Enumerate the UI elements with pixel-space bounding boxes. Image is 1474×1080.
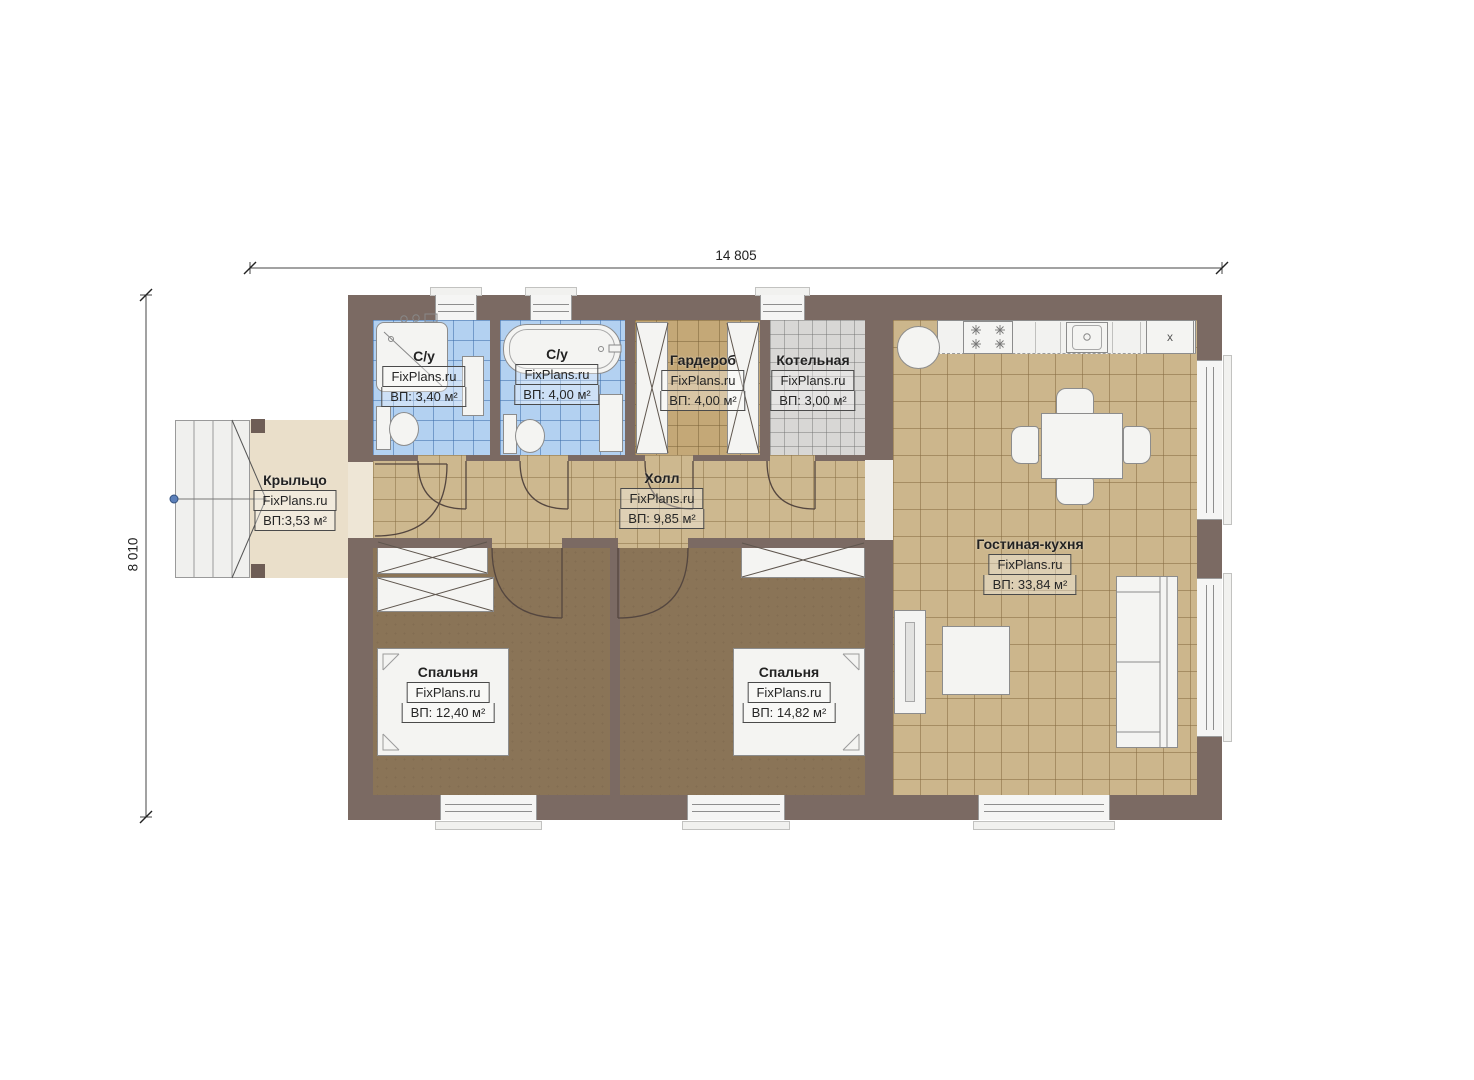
partition — [562, 538, 618, 548]
toilet-bowl — [515, 419, 545, 453]
counter-divider — [1060, 322, 1061, 353]
room-label-boiler: Котельная FixPlans.ru ВП: 3,00 м² — [770, 352, 855, 411]
chair — [1123, 426, 1151, 464]
window — [435, 295, 477, 320]
room-name: Холл — [644, 470, 679, 486]
room-area: ВП: 33,84 м² — [984, 575, 1077, 595]
room-label-bath1: С/у FixPlans.ru ВП: 3,40 м² — [381, 348, 466, 407]
cabinet — [599, 394, 623, 452]
chair — [1011, 426, 1039, 464]
stairs — [175, 420, 250, 578]
sofa — [1116, 576, 1178, 748]
counter-divider — [1140, 322, 1141, 353]
counter-divider — [1112, 322, 1113, 353]
sink-basin — [1072, 325, 1102, 350]
room-area: ВП: 4,00 м² — [514, 385, 599, 405]
watermark: FixPlans.ru — [515, 364, 598, 385]
room-area: ВП: 14,82 м² — [743, 703, 836, 723]
chair — [1056, 388, 1094, 416]
dimension-width: 14 805 — [686, 248, 786, 263]
room-label-bedroom2: Спальня FixPlans.ru ВП: 14,82 м² — [743, 664, 836, 723]
partition — [625, 320, 635, 461]
tv — [905, 622, 915, 702]
room-label-bedroom1: Спальня FixPlans.ru ВП: 12,40 м² — [402, 664, 495, 723]
room-area: ВП: 3,40 м² — [381, 387, 466, 407]
watermark: FixPlans.ru — [771, 370, 854, 391]
closet — [377, 577, 494, 612]
partition — [865, 540, 893, 820]
room-name: Спальня — [759, 664, 819, 680]
partition — [865, 295, 893, 460]
dimension-height: 8 010 — [126, 523, 141, 587]
coffee-table — [942, 626, 1010, 695]
room-label-wardrobe: Гардероб FixPlans.ru ВП: 4,00 м² — [660, 352, 745, 411]
watermark: FixPlans.ru — [747, 682, 830, 703]
window — [440, 795, 537, 820]
room-name: Спальня — [418, 664, 478, 680]
window — [978, 795, 1110, 820]
room-name: С/у — [546, 346, 568, 362]
room-name: Котельная — [776, 352, 849, 368]
watermark: FixPlans.ru — [382, 366, 465, 387]
window-sill — [1223, 573, 1232, 742]
window-sill — [435, 821, 542, 830]
fridge-label: x — [1167, 330, 1173, 344]
stove — [963, 321, 1013, 354]
room-label-bath2: С/у FixPlans.ru ВП: 4,00 м² — [514, 346, 599, 405]
partition — [760, 320, 770, 461]
room-area: ВП: 12,40 м² — [402, 703, 495, 723]
watermark: FixPlans.ru — [988, 554, 1071, 575]
chair — [1056, 477, 1094, 505]
room-label-living: Гостиная-кухня FixPlans.ru ВП: 33,84 м² — [976, 536, 1083, 595]
room-area: ВП: 9,85 м² — [619, 509, 704, 529]
watermark: FixPlans.ru — [406, 682, 489, 703]
room-area: ВП: 3,00 м² — [770, 391, 855, 411]
hall-living-passage — [865, 460, 893, 540]
room-label-hall: Холл FixPlans.ru ВП: 9,85 м² — [619, 470, 704, 529]
kitchen-round-table — [897, 326, 940, 369]
toilet-bowl — [389, 412, 419, 446]
partition — [610, 548, 620, 795]
porch-post — [251, 419, 265, 433]
partition — [693, 455, 767, 461]
partition — [490, 320, 500, 461]
watermark: FixPlans.ru — [620, 488, 703, 509]
partition — [815, 455, 868, 461]
window — [1197, 578, 1222, 737]
window-sill — [682, 821, 790, 830]
room-name: Гардероб — [670, 352, 736, 368]
window — [687, 795, 785, 820]
wall-left — [348, 295, 373, 820]
window — [1197, 360, 1222, 520]
room-name: Крыльцо — [263, 472, 327, 488]
partition — [373, 538, 492, 548]
partition — [688, 538, 868, 548]
porch-post — [251, 564, 265, 578]
room-area: ВП: 4,00 м² — [660, 391, 745, 411]
room-area: ВП:3,53 м² — [254, 511, 336, 531]
watermark: FixPlans.ru — [253, 490, 336, 511]
window-sill — [973, 821, 1115, 830]
window — [530, 295, 572, 320]
room-name: С/у — [413, 348, 435, 364]
floor-plan-canvas: x — [0, 0, 1474, 1080]
watermark: FixPlans.ru — [661, 370, 744, 391]
partition — [373, 455, 418, 461]
room-label-porch: Крыльцо FixPlans.ru ВП:3,53 м² — [253, 472, 336, 531]
room-name: Гостиная-кухня — [976, 536, 1083, 552]
dining-table — [1041, 413, 1123, 479]
fridge: x — [1146, 320, 1194, 354]
counter-divider — [1035, 322, 1036, 353]
porch-door-opening — [348, 462, 373, 538]
window-sill — [1223, 355, 1232, 525]
window — [760, 295, 805, 320]
